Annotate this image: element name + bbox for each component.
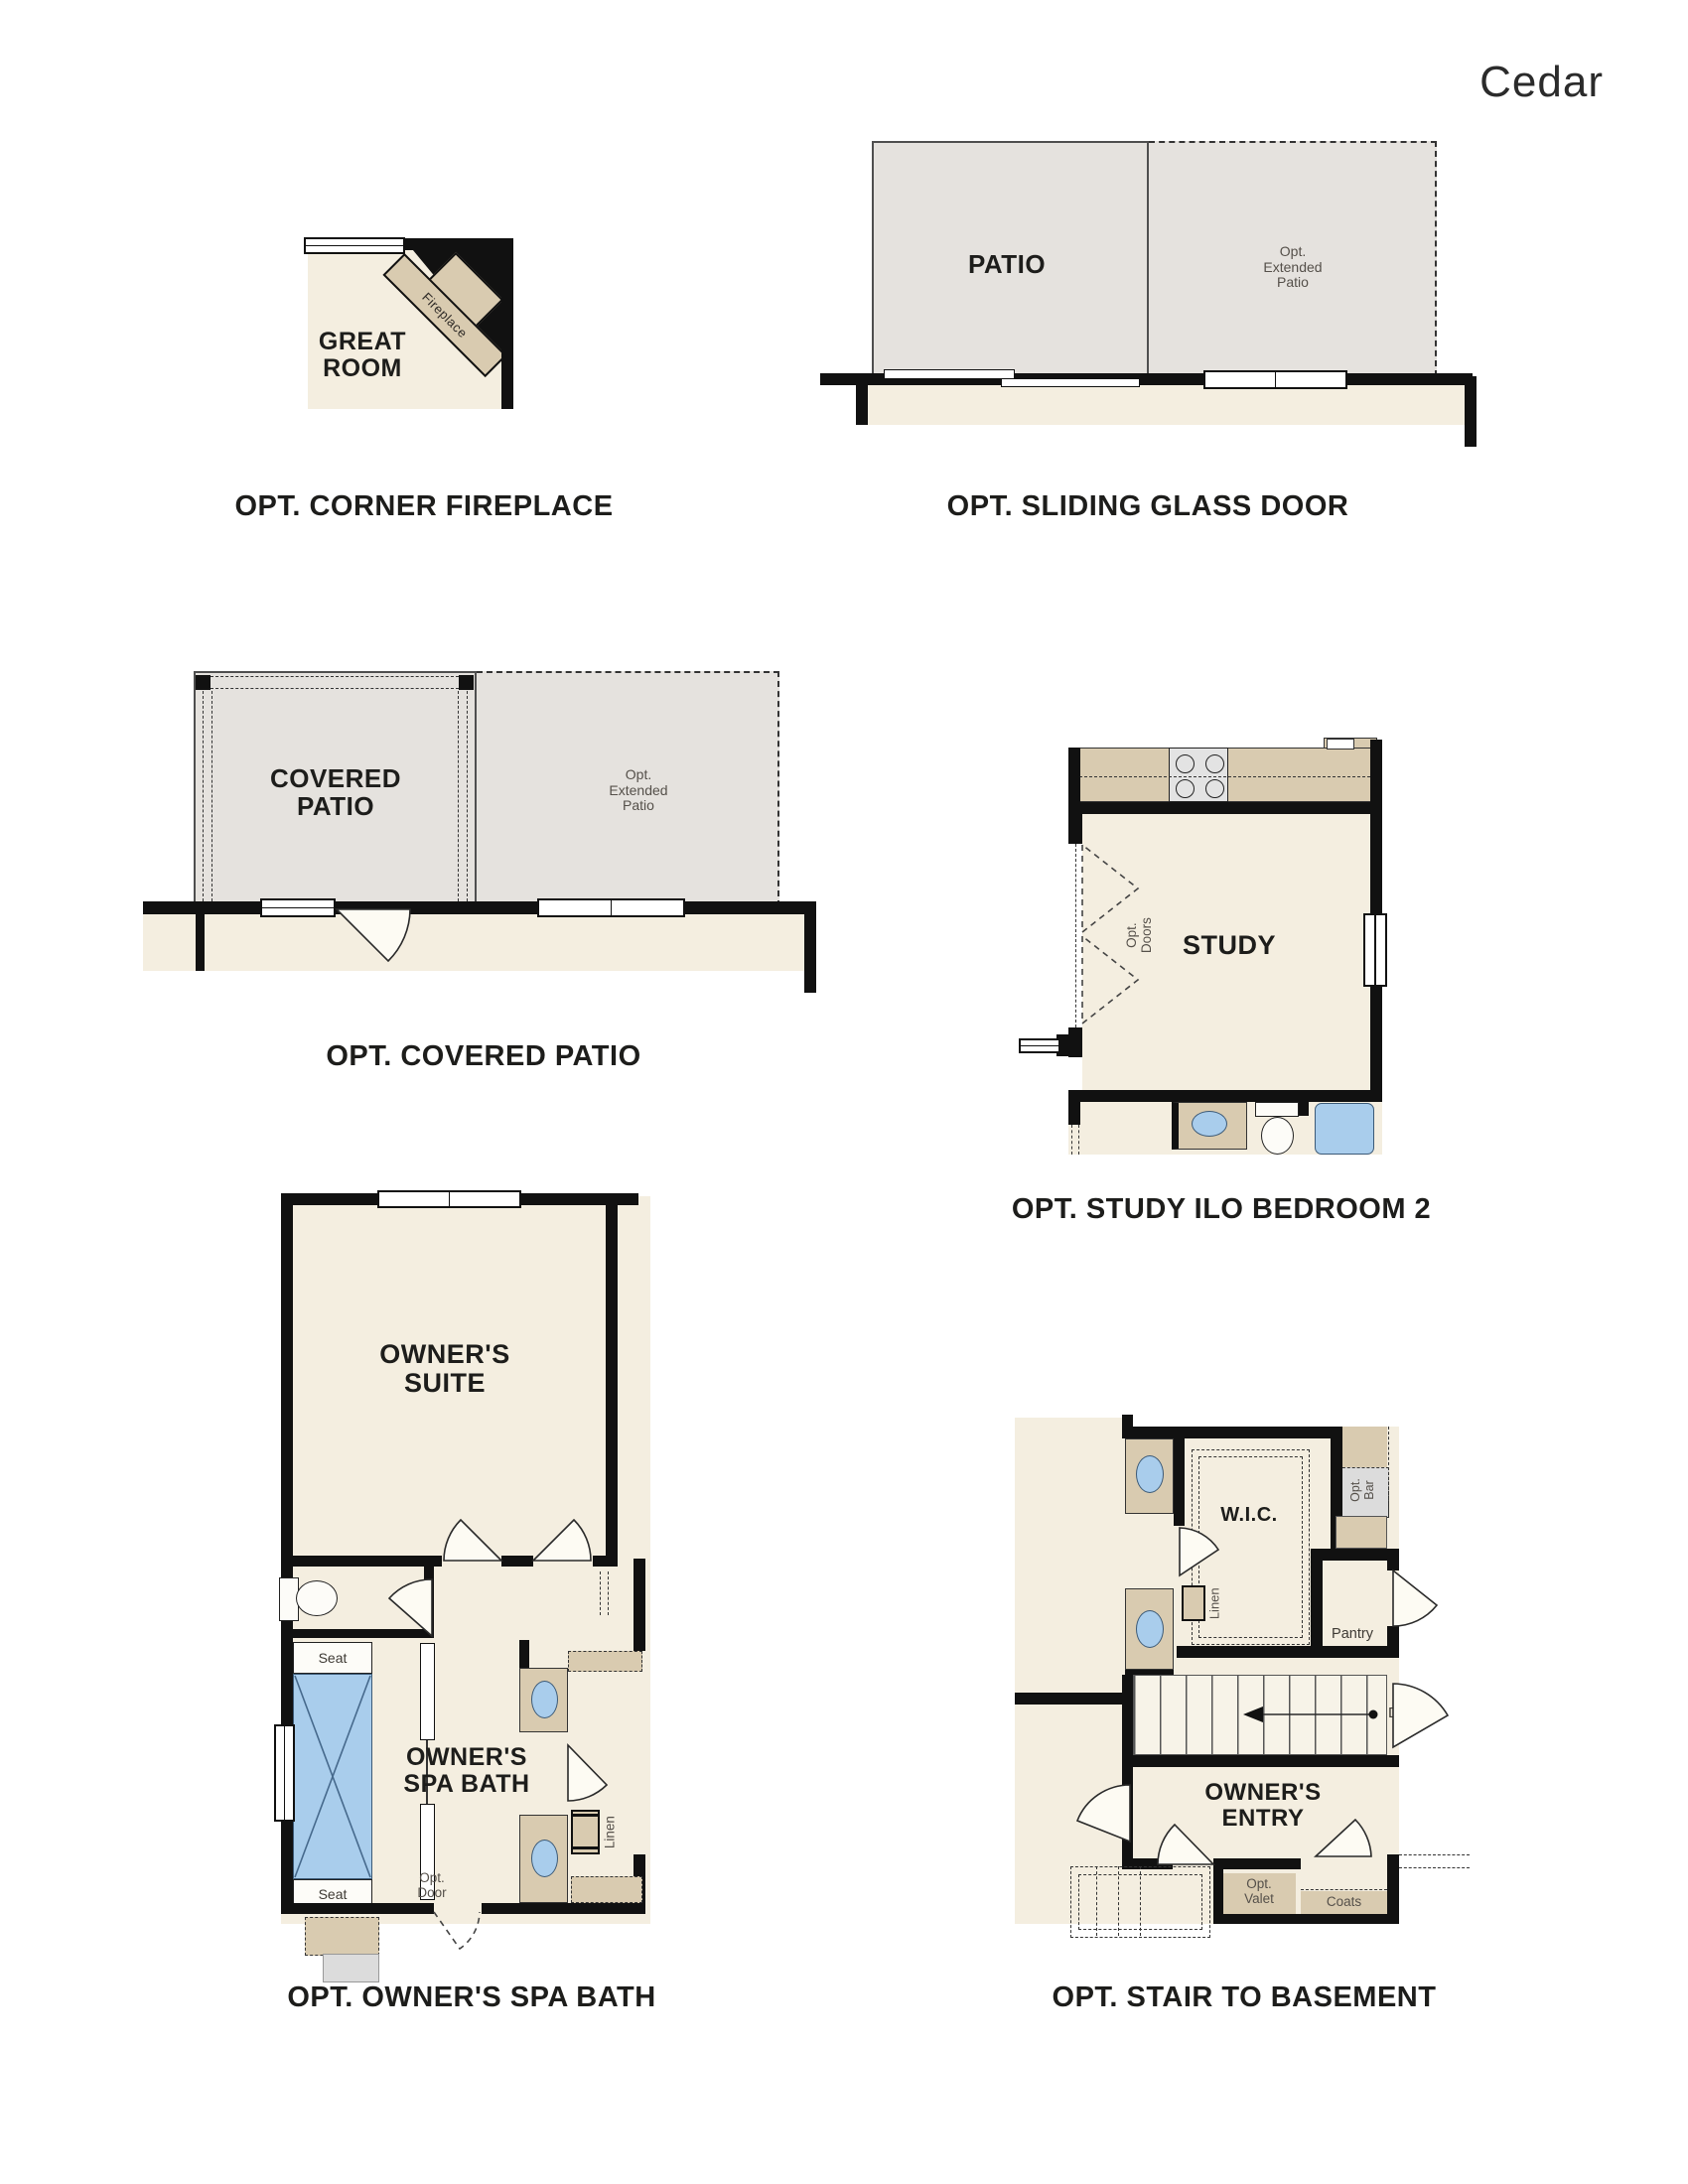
owners-entry-label-line1: OWNER'S	[1164, 1780, 1362, 1806]
sink	[1136, 1455, 1164, 1493]
wic-label: W.I.C.	[1190, 1505, 1309, 1527]
wall	[1387, 1549, 1399, 1570]
opt-stair-tread	[1096, 1866, 1097, 1936]
opt-stair-tread	[1140, 1866, 1141, 1936]
floorplan-options-sheet: Cedar Fireplace GREAT ROOM OPT. CORNER F…	[0, 0, 1688, 2184]
opt-valet-label-line2: Valet	[1229, 1891, 1289, 1906]
owners-entry-label-line2: ENTRY	[1164, 1806, 1362, 1832]
linen-label: Linen	[1208, 1573, 1223, 1633]
opt-passage-line	[1399, 1867, 1470, 1868]
opt-bar-boundary	[1388, 1427, 1389, 1516]
coats-rod-line	[1301, 1889, 1387, 1890]
diagram-title-stair-to-basement: OPT. STAIR TO BASEMENT	[996, 1981, 1492, 2014]
opt-passage-line	[1399, 1854, 1470, 1855]
opt-valet-label-line1: Opt.	[1229, 1876, 1289, 1891]
opt-bar-label-line2: Bar	[1362, 1460, 1376, 1520]
wall	[1311, 1549, 1399, 1561]
counter	[1336, 1516, 1387, 1549]
wall	[1122, 1427, 1342, 1438]
diagram-stair-to-basement: W.I.C. Opt. Bar Linen Pantry Dn OWNER'S …	[0, 0, 1688, 2184]
wall	[1177, 1646, 1399, 1658]
wall	[1122, 1675, 1133, 1869]
stairs	[1133, 1675, 1387, 1755]
wall	[1133, 1755, 1399, 1767]
pantry-label: Pantry	[1313, 1626, 1392, 1642]
wall	[1218, 1858, 1301, 1869]
house-floor	[1015, 1418, 1122, 1924]
sink	[1136, 1610, 1164, 1648]
linen-cabinet	[1182, 1585, 1205, 1621]
wall	[1015, 1693, 1122, 1705]
coats-label: Coats	[1307, 1894, 1381, 1909]
wall	[1387, 1854, 1399, 1924]
wall	[1301, 1914, 1399, 1924]
wall	[1174, 1433, 1185, 1526]
wall	[1213, 1914, 1301, 1924]
stairs-dn-label: Dn	[1388, 1705, 1428, 1721]
opt-stair-tread	[1118, 1866, 1119, 1936]
opt-bar-label-line1: Opt.	[1348, 1460, 1362, 1520]
